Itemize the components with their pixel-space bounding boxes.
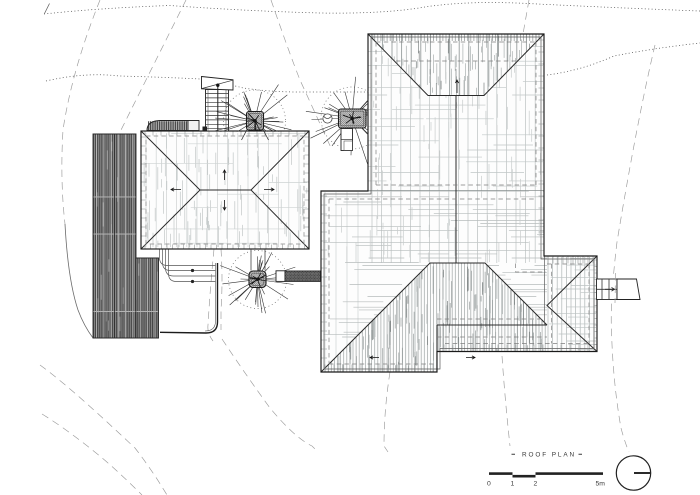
svg-text:5m: 5m: [596, 481, 606, 488]
svg-text:1: 1: [511, 481, 515, 488]
svg-text:0: 0: [487, 481, 491, 488]
svg-text:2: 2: [534, 481, 538, 488]
svg-text:ROOF PLAN: ROOF PLAN: [522, 452, 576, 459]
